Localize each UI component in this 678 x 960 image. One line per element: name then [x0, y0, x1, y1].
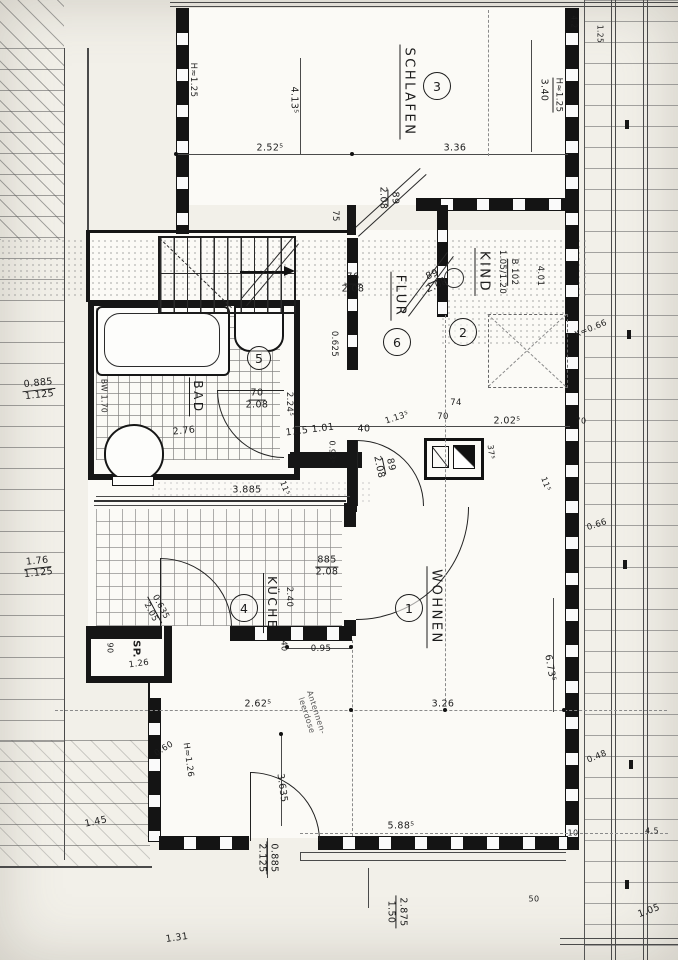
toilet-bowl: [104, 424, 164, 482]
room-label-kueche: KÜCHE: [263, 573, 279, 633]
room-label-wohnen: WOHNEN: [427, 566, 444, 648]
wall-kitchen-bottom-left: [88, 626, 162, 639]
axis-line-kind: [445, 315, 446, 711]
room-number-wohnen: 1: [395, 594, 423, 622]
dim-3885: 3.885: [232, 485, 261, 496]
dim-topright-b: 1.25: [596, 25, 605, 43]
room-number-kind: 2: [449, 318, 477, 346]
room-number-text: 6: [393, 335, 401, 350]
dim-line: [531, 40, 532, 152]
chimney-block: [424, 438, 484, 480]
room-number-schlafen: 3: [423, 72, 451, 100]
fraction-num: 0.885: [267, 841, 279, 874]
dim-h125-right: H≈1.25: [553, 78, 564, 113]
dim-line: [176, 154, 352, 155]
terrace-line2: [300, 860, 566, 861]
toilet-base: [112, 476, 154, 486]
wall-step-left2: [148, 681, 150, 701]
dim-dot: [349, 645, 353, 649]
dim-line: [295, 426, 570, 427]
room-area-lower: [150, 682, 566, 838]
dim-2025: 2.02⁵: [494, 416, 521, 427]
axis-line-horizontal: [55, 710, 667, 711]
axis-line-wohnen: [352, 640, 353, 836]
wall-kitchen-top: [94, 500, 346, 502]
tile-mark: [625, 880, 629, 889]
chimney-flue-filled: [453, 445, 475, 469]
floor-plan: SCHLAFEN 3 KIND 2 FLUR 6 BAD 5 KÜCHE 4 W…: [0, 0, 678, 960]
dim-2245: 2.24⁵: [284, 392, 294, 416]
dim-45: 4.5: [645, 827, 659, 836]
note-line: 1.05/1.20: [497, 250, 508, 294]
fraction-den: 2.08: [246, 401, 269, 412]
stairs-arrow-icon: [284, 266, 295, 276]
ground-line: [0, 866, 152, 868]
dim-70: 70: [437, 412, 449, 422]
dim-topright-a: 4.2: [570, 15, 579, 28]
room-area-top: [186, 8, 565, 205]
dim-326: 3.26: [432, 699, 455, 710]
dim-336: 3.36: [444, 143, 467, 154]
wall-kitchen-top2: [94, 505, 346, 506]
terrace-line: [300, 852, 566, 853]
roof-edge-line: [64, 48, 65, 860]
door-size-schlafen: 89 2.08: [377, 187, 400, 210]
wall-kitchen-wohnen-a: [344, 503, 356, 527]
room-number-text: 4: [240, 601, 248, 616]
wall-flur-left-lower: [347, 440, 357, 512]
room-number-text: 1: [405, 601, 413, 616]
chimney-flue-hatched: [432, 446, 449, 468]
fraction-den: 2.08: [342, 285, 365, 296]
room-label-kind: KIND: [475, 248, 492, 296]
room-label-flur: FLUR: [391, 272, 408, 321]
dim-line: [352, 154, 568, 155]
dim-dot: [349, 708, 353, 712]
dim-2625: 2.62⁵: [245, 699, 272, 710]
window-size-left-lower: 1.76 1.125: [22, 555, 53, 581]
wall-sp-right: [164, 626, 172, 683]
dim-50: 50: [529, 895, 540, 904]
tile-mark: [623, 560, 627, 569]
window-size-bottom: 2.875 1.50: [385, 895, 408, 928]
bathtub-inner: [104, 313, 220, 367]
wall-step-left: [88, 681, 150, 683]
fraction-den: 2.125: [256, 843, 267, 872]
wall-corridor-left: [86, 232, 90, 302]
dim-375: 37⁵: [486, 444, 497, 460]
dim-dot: [562, 708, 566, 712]
wall-bottom-left: [159, 836, 249, 850]
room-label-schlafen: SCHLAFEN: [400, 45, 417, 140]
frame-line-bottom2: [560, 944, 678, 945]
tile-joint-line: [647, 0, 648, 960]
door-size-wohnen: 89 2.08: [370, 452, 397, 479]
door-size-kitchen: 885 2.08: [315, 556, 338, 579]
wall-sp-left: [86, 626, 91, 682]
axis-line: [488, 10, 489, 156]
wall-flur-left-upper: [347, 205, 356, 235]
frame-line-bottom: [560, 938, 678, 939]
dim-10: 10: [568, 829, 579, 838]
dim-70b: 70: [576, 417, 587, 426]
tile-joint-line: [643, 0, 644, 960]
room-label-sp: SP.: [131, 640, 142, 658]
dim-095: 0.95: [311, 644, 332, 654]
wall-knee-right: [565, 8, 579, 850]
room-number-kueche: 4: [230, 594, 258, 622]
room-number-text: 2: [459, 325, 467, 340]
dim-h125-left: H≈1.25: [188, 63, 198, 98]
wall-flur-left: [347, 238, 358, 370]
dim-line: [368, 868, 369, 908]
dim-40: 40: [358, 424, 371, 435]
fraction-num: 89: [388, 190, 400, 207]
note-bathtub: BW 1.70: [100, 379, 109, 413]
frame-line-top: [170, 2, 678, 3]
wall-corridor-top: [86, 230, 352, 233]
dim-340: 3.40: [539, 79, 550, 102]
dim-dot: [174, 152, 178, 156]
window-size-left: 0.885 1.125: [21, 377, 56, 403]
note-line: B 102: [508, 259, 520, 286]
dim-131: 1.31: [165, 931, 189, 945]
wall-bottom-right: [318, 836, 568, 850]
dim-75: 75: [330, 210, 340, 222]
wall-knee-topleft: [176, 8, 189, 234]
door-size-entrance: 0.885 2.125: [256, 841, 279, 874]
dim-4135: 4.13⁵: [289, 87, 300, 114]
roof-tiles-right: [584, 0, 678, 960]
dim-276: 2.76: [172, 424, 196, 437]
fraction-den: 2.08: [316, 568, 339, 579]
dim-0625: 0.625: [329, 331, 339, 357]
room-label-bad: BAD: [189, 377, 205, 416]
dim-40b: 40: [280, 641, 289, 652]
room-number-bad: 5: [247, 346, 271, 370]
roof-hatch-topleft: [0, 0, 64, 240]
tile-joint-line: [611, 0, 612, 960]
note-kind-window: B 102 1.05/1.20: [497, 250, 519, 294]
room-number-flur: 6: [383, 328, 411, 356]
wall-knee-lowerleft: [148, 698, 161, 842]
fraction-den: 2.08: [377, 187, 388, 210]
dim-line-bottom: [300, 833, 668, 834]
terrace-end: [300, 852, 301, 861]
dim-0935: 0.93⁵: [328, 440, 337, 463]
fraction-den: 1.50: [385, 901, 396, 924]
room-number-text: 5: [255, 351, 263, 366]
dim-dot: [279, 732, 283, 736]
door-size-bad: 70 2.08: [246, 389, 269, 412]
tile-joint-line: [615, 0, 616, 960]
dim-90: 90: [106, 643, 115, 654]
tile-mark: [629, 760, 633, 769]
dim-dot: [350, 152, 354, 156]
dim-line: [96, 496, 350, 497]
dim-5885: 5.88⁵: [388, 821, 415, 832]
room-number-text: 3: [433, 79, 441, 94]
dim-74: 74: [450, 398, 462, 408]
dim-2525: 2.52⁵: [257, 143, 284, 154]
tile-mark: [627, 330, 631, 339]
roof-hatch-bottomleft: [0, 740, 150, 868]
dim-401: 4.01: [535, 266, 545, 287]
fraction-num: 2.875: [396, 895, 408, 928]
frame-line-top2: [170, 6, 678, 7]
tile-mark: [625, 120, 629, 129]
roof-edge-line2: [87, 48, 89, 232]
dim-240: 2.40: [284, 587, 294, 608]
wall-kitchen-bottom-right: [230, 626, 352, 641]
dim-line: [300, 58, 301, 154]
door-size-stairs: 76 2.08: [342, 273, 365, 296]
